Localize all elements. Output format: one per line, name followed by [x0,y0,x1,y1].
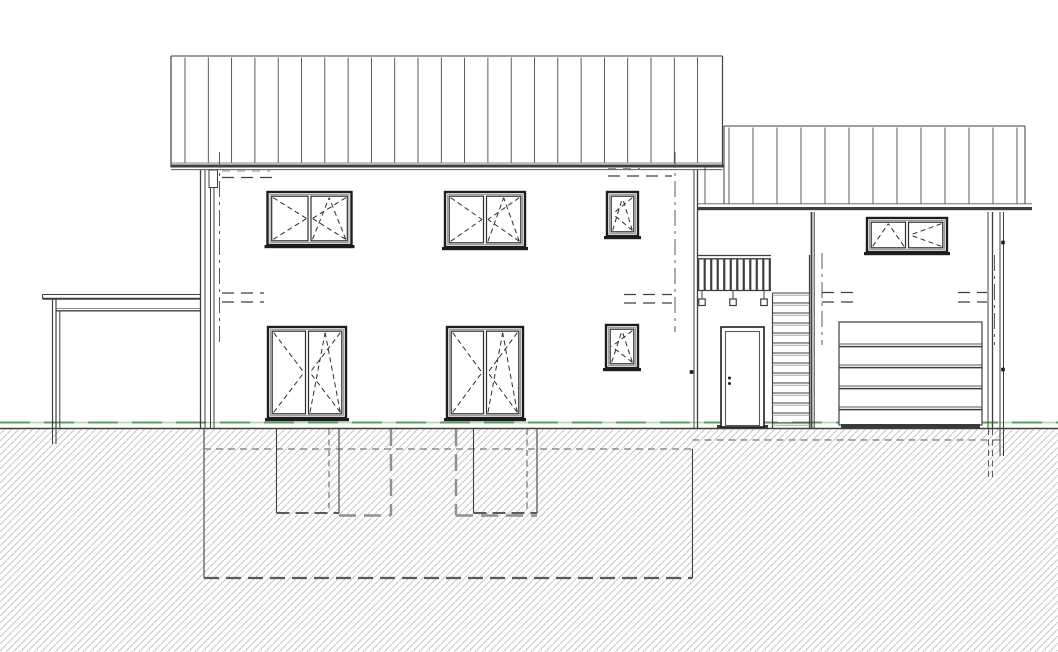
window-upper-left-frame [268,192,352,245]
window-garage [864,218,950,255]
pipe-clamp-right-upper [1001,241,1005,245]
window-garage-frame [867,218,947,252]
railing-hanger [761,299,768,306]
roofs [171,56,1032,210]
terrain-hatch [0,430,1058,652]
window-upper-mid-frame [445,192,525,247]
window-ground-left [265,327,349,421]
elevation-page [0,0,1058,652]
window-upper-small [604,192,641,239]
entrance-door [717,327,768,429]
window-ground-small [603,325,641,371]
door-handle [728,382,731,385]
railing-hanger [730,299,737,306]
pipe-clamp-right-lower [1001,368,1005,372]
main-roof-fascia [171,165,724,168]
window-upper-left [265,192,355,248]
wall-tick-entrance [690,370,694,374]
gutter-bracket-left [209,170,218,188]
garage-door-bottom-bar [841,424,980,428]
entrance-stairs [773,255,810,428]
landing-railing [697,256,771,306]
door-frame [721,327,764,427]
window-upper-mid [442,192,528,250]
window-ground-mid [444,327,526,421]
door-handle [728,377,731,380]
elevation-drawing [0,0,1058,652]
railing-hanger [699,299,706,306]
carport [43,295,201,430]
annex-roof-fascia [697,207,1032,210]
garage-door [839,322,982,428]
ground-soil [0,430,1058,652]
